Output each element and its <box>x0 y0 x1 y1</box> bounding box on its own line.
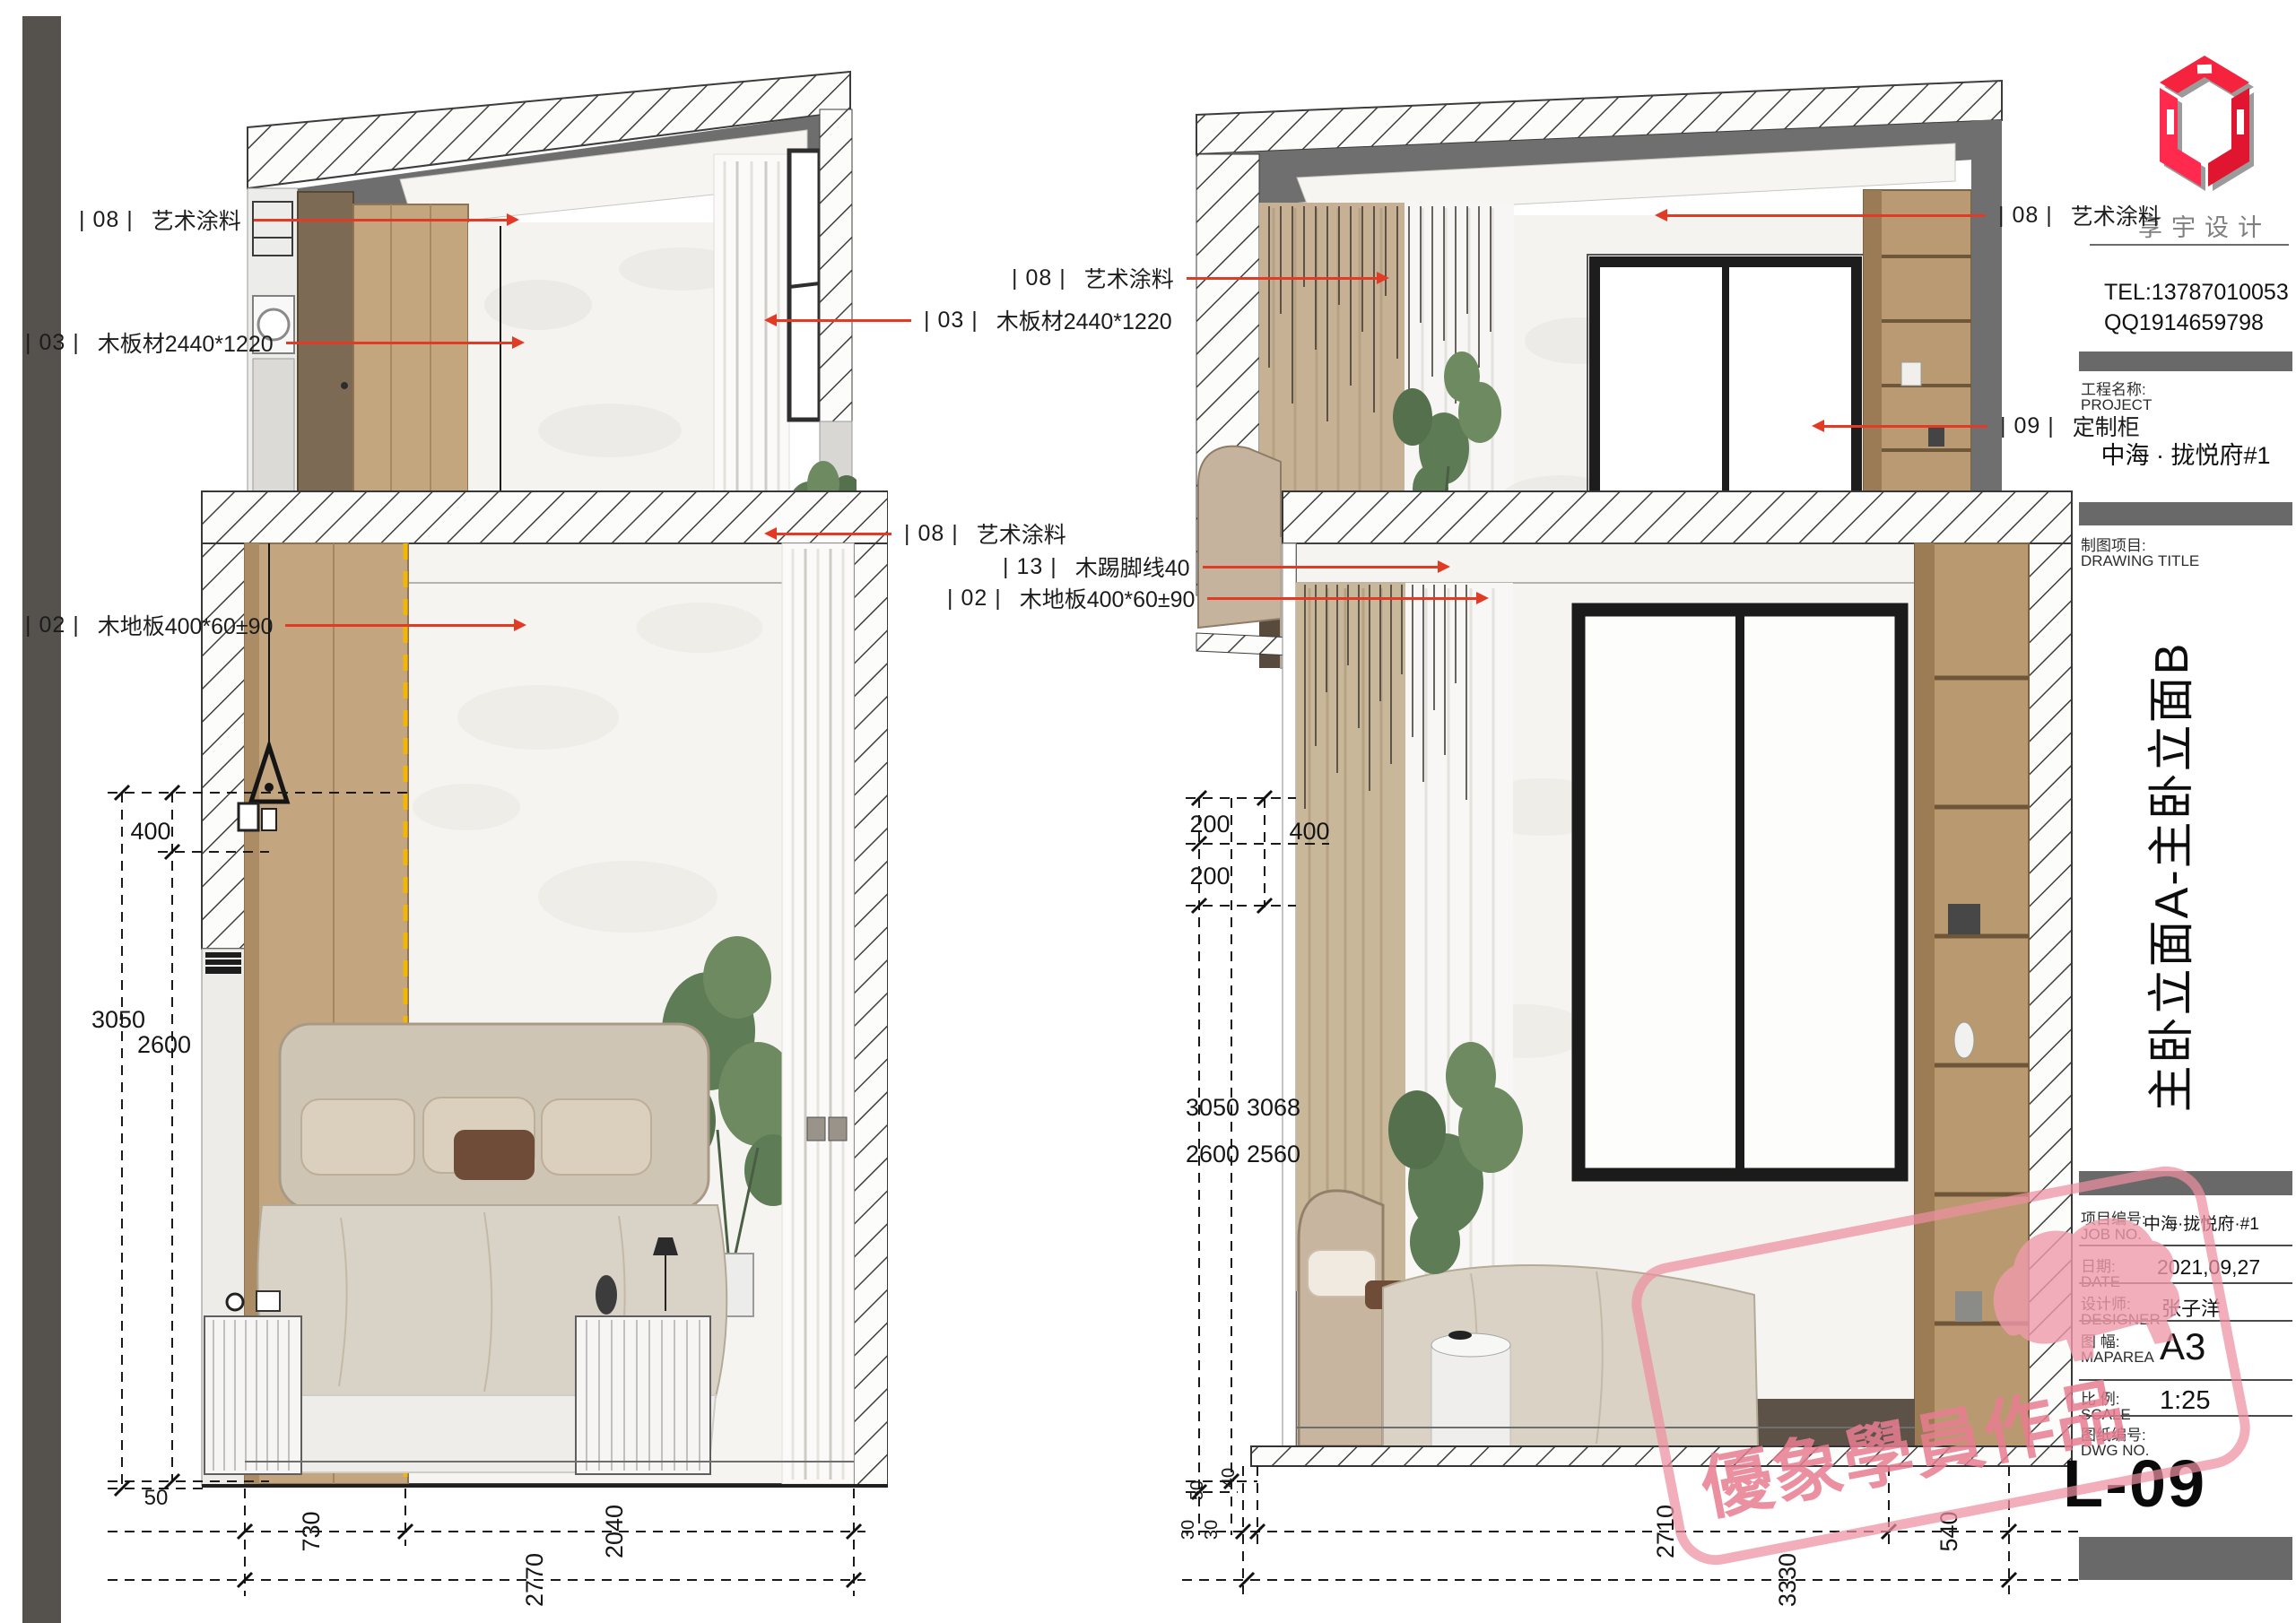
dim-50: 50 <box>144 1486 169 1510</box>
switch-plate <box>807 1117 825 1141</box>
leader-line <box>285 624 514 627</box>
arrow-right-icon <box>514 619 526 631</box>
dim-2600: 2600 <box>137 1031 191 1058</box>
vent-grille <box>205 952 241 974</box>
vase-icon <box>596 1275 617 1315</box>
page-edge-bar <box>22 16 61 1623</box>
leader-line <box>286 342 512 344</box>
elephant-icon <box>1963 1189 2205 1388</box>
annotation-art-paint-mid: | 08 | 艺术涂料 <box>1012 262 1389 294</box>
annotation-art-paint-right: | 08 | 艺术涂料 <box>1655 199 2161 231</box>
dim-3050: 3050 <box>91 1006 145 1033</box>
material-label: 木地板400*60±90 <box>1020 582 1196 614</box>
drawing-title-vertical: 主卧立面A-主卧立面B <box>2145 586 2199 1168</box>
dim-400: 400 <box>130 818 170 845</box>
arrow-left-icon <box>1655 209 1667 221</box>
material-label: 木踢脚线40 <box>1075 551 1190 583</box>
material-label: 艺术涂料 <box>1084 262 1174 294</box>
material-code: | 02 | <box>25 612 80 638</box>
material-label: 定制柜 <box>2073 410 2140 442</box>
material-code: | 02 | <box>947 586 1002 612</box>
leader-line <box>1824 425 1987 428</box>
dim-50: 50 <box>1187 1480 1207 1500</box>
annotation-wood-floor-mid: | 02 | 木地板400*60±90 <box>947 582 1489 614</box>
leader-line <box>1187 277 1377 280</box>
arrow-right-icon <box>1476 592 1489 604</box>
arrow-right-icon <box>507 213 519 226</box>
clock-icon <box>227 1294 243 1310</box>
leader-line <box>1207 597 1476 600</box>
accent-pillow <box>454 1130 535 1180</box>
material-label: 艺术涂料 <box>152 204 241 236</box>
annotation-wood-floor-left: | 02 | 木地板400*60±90 <box>25 609 526 641</box>
arrow-right-icon <box>1438 560 1450 573</box>
section-bar <box>2079 502 2292 525</box>
drawing-label-en: DRAWING TITLE <box>2081 552 2199 570</box>
dim-2770: 2770 <box>521 1553 548 1607</box>
arrow-left-icon <box>764 527 777 540</box>
material-label: 木板材2440*1220 <box>996 304 1172 336</box>
dim-200-upper: 200 <box>1189 811 1230 838</box>
material-code: | 08 | <box>904 521 959 547</box>
leader-line <box>254 219 507 221</box>
leader-line <box>777 533 891 535</box>
arrow-left-icon <box>764 314 777 326</box>
dim-30-b: 30 <box>1202 1520 1222 1540</box>
dim-3068: 3068 <box>1247 1094 1300 1121</box>
arrow-left-icon <box>1812 420 1824 432</box>
nightstand-right <box>576 1316 710 1474</box>
arrow-right-icon <box>512 336 525 349</box>
drawing-sheet: 400 3050 2600 50 730 2040 2770 <box>0 0 2296 1623</box>
right-wall-hatch <box>854 543 888 1486</box>
dim-3330: 3330 <box>1774 1553 1801 1607</box>
material-code: | 03 | <box>924 308 978 334</box>
tel-text: TEL:13787010053 <box>2104 280 2289 306</box>
material-code: | 08 | <box>1998 203 2053 229</box>
annotation-wood-board-left: | 03 | 木板材2440*1220 <box>25 326 525 359</box>
bed-headboard <box>1299 1191 1383 1446</box>
leader-line <box>1667 214 1986 217</box>
dim-730: 730 <box>298 1511 325 1551</box>
dim-2600: 2600 <box>1186 1141 1239 1167</box>
material-code: | 08 | <box>1012 265 1066 291</box>
annotation-skirting-mid: | 13 | 木踢脚线40 <box>1003 551 1450 583</box>
material-label: 艺术涂料 <box>2071 199 2161 231</box>
dim-200-lower: 200 <box>1189 863 1230 890</box>
annotation-art-paint-mid2: | 08 | 艺术涂料 <box>764 517 1066 550</box>
material-code: | 09 | <box>2000 413 2055 439</box>
tan-curtain <box>1296 583 1405 1291</box>
annotation-cabinet-right: | 09 | 定制柜 <box>1812 410 2140 442</box>
leader-line <box>777 319 911 322</box>
dim-40: 40 <box>1219 1468 1239 1488</box>
material-code: | 13 | <box>1003 554 1057 580</box>
dim-30-a: 30 <box>1178 1520 1198 1540</box>
leader-line <box>1203 566 1438 568</box>
dim-3050: 3050 <box>1186 1094 1239 1121</box>
nightstand-left <box>204 1316 301 1474</box>
material-label: 木板材2440*1220 <box>98 326 274 359</box>
arrow-right-icon <box>1377 272 1389 284</box>
material-code: | 03 | <box>25 330 80 356</box>
dim-2040: 2040 <box>601 1505 628 1558</box>
elevation-a: 400 3050 2600 50 730 2040 2770 <box>72 484 888 1614</box>
annotation-wood-board-mid: | 03 | 木板材2440*1220 <box>764 304 1172 336</box>
qq-text: QQ1914659798 <box>2104 310 2264 336</box>
dim-400-total: 400 <box>1289 818 1329 845</box>
dim-2560: 2560 <box>1247 1141 1300 1167</box>
right-wall-hatch <box>820 109 852 421</box>
material-label: 木地板400*60±90 <box>98 609 274 641</box>
round-side-table <box>1431 1331 1510 1446</box>
material-code: | 08 | <box>79 207 134 233</box>
left-wall-hatch <box>202 543 245 949</box>
annotation-art-paint-left: | 08 | 艺术涂料 <box>79 204 519 236</box>
company-logo <box>2151 47 2260 206</box>
material-label: 艺术涂料 <box>977 517 1066 550</box>
ceiling-slab-hatch <box>1283 491 2072 543</box>
section-bar <box>2079 352 2292 371</box>
wall-frame-icon <box>239 803 258 830</box>
section-bar <box>2079 1537 2292 1580</box>
logo-divider <box>2090 244 2289 246</box>
